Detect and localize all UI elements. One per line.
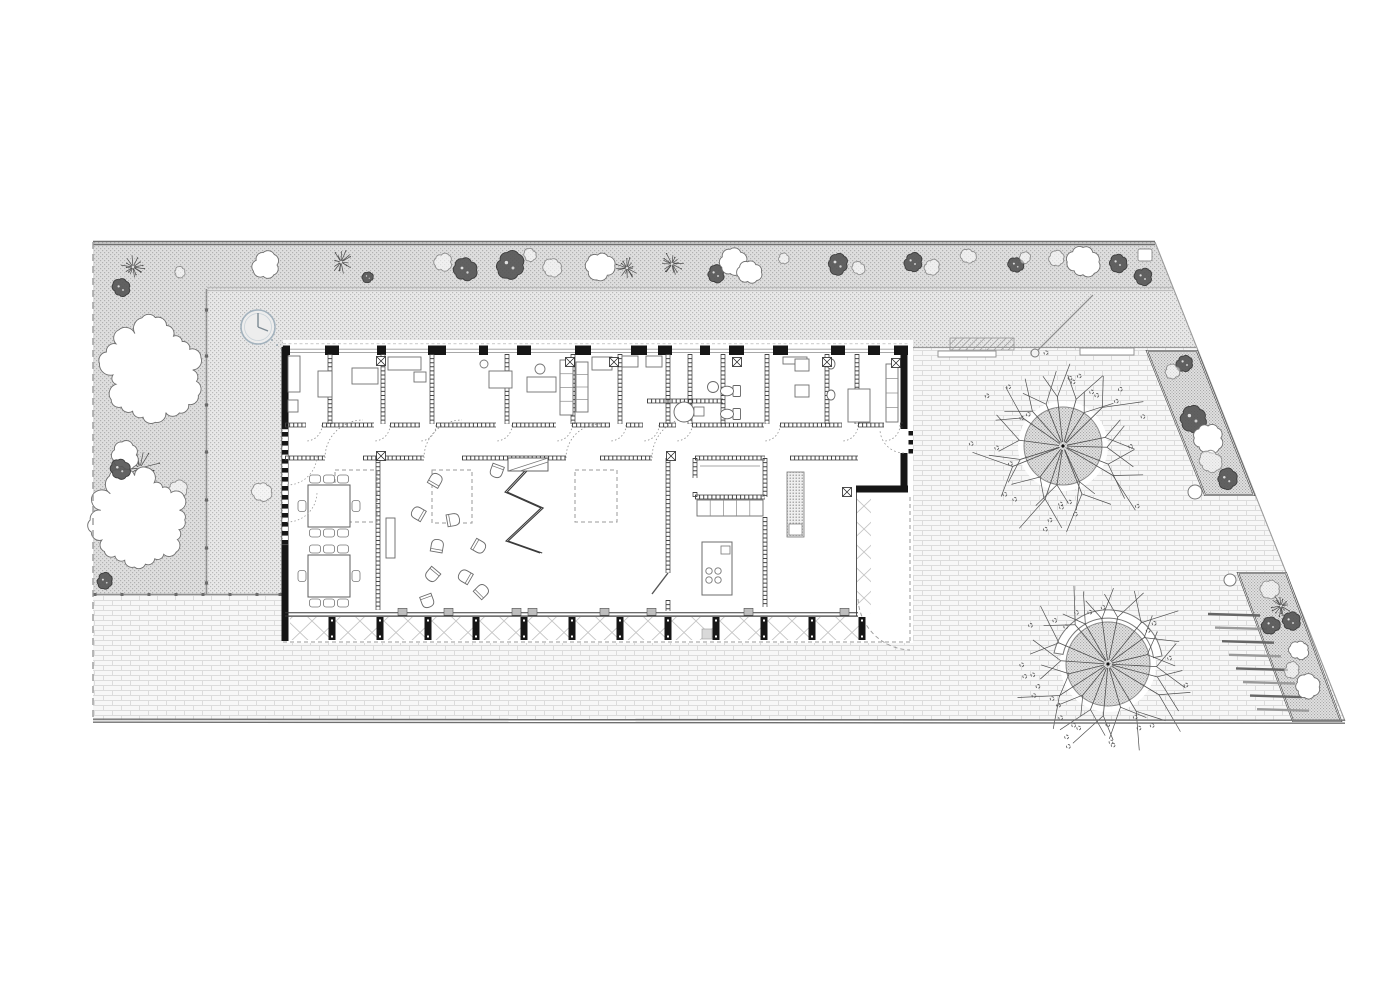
building (282, 340, 914, 650)
vent-symbol (377, 357, 386, 366)
chair (338, 599, 349, 607)
vent-symbol (733, 358, 742, 367)
pole-base (1031, 349, 1039, 357)
bench (1080, 348, 1134, 355)
wall-pier (773, 346, 788, 356)
desk-chair (480, 360, 488, 368)
vent-symbol (667, 452, 676, 461)
chair (324, 545, 335, 553)
wall-step (856, 486, 908, 493)
wall-pier (377, 346, 386, 356)
shrub-dark (1282, 612, 1300, 631)
chair (298, 571, 306, 582)
wall-pier (700, 346, 710, 356)
planter-box (1138, 249, 1152, 261)
door-track (840, 608, 849, 615)
door-track (600, 608, 609, 615)
vent-symbol (823, 358, 832, 367)
chair (338, 529, 349, 537)
wall-pier (325, 346, 339, 356)
toilet (721, 386, 741, 397)
wall-pier (575, 346, 591, 356)
desk-chair (535, 364, 545, 374)
bench (938, 351, 996, 357)
baby-bath (674, 402, 694, 422)
shrub-light (1049, 250, 1064, 266)
chair (298, 501, 306, 512)
door-track (398, 608, 407, 615)
vent-symbol (610, 358, 619, 367)
furniture (388, 357, 421, 370)
chair (324, 529, 335, 537)
exterior-wall-west (282, 347, 289, 641)
shrub-dark (97, 572, 112, 589)
chair (310, 599, 321, 607)
door-track (647, 608, 656, 615)
chair (324, 475, 335, 483)
wall-pier (479, 346, 488, 356)
architectural-site-plan (0, 0, 1400, 990)
furniture (288, 356, 300, 392)
chair (310, 529, 321, 537)
wall-pier (428, 346, 446, 356)
furniture (352, 368, 378, 384)
veranda-deck-east (857, 497, 871, 614)
furniture (848, 389, 870, 422)
furniture (527, 377, 556, 392)
sink (827, 390, 835, 400)
toilet (721, 409, 741, 420)
plant-pot (1188, 485, 1202, 499)
wall-pier (729, 346, 744, 356)
chair (338, 475, 349, 483)
plant-pot (1224, 574, 1236, 586)
sink (721, 546, 730, 554)
furniture (592, 357, 612, 370)
vent-symbol (377, 452, 386, 461)
wall-pier (831, 346, 845, 356)
furniture (622, 356, 638, 367)
shelf (386, 518, 395, 558)
furniture (489, 371, 512, 388)
furniture (414, 372, 426, 382)
chair (310, 545, 321, 553)
shrub-light (1260, 580, 1279, 599)
entrance-grate (950, 338, 1014, 350)
furniture (318, 371, 332, 397)
furniture (288, 400, 298, 412)
vent-symbol (892, 359, 901, 368)
wall-pier (631, 346, 647, 356)
furniture (646, 356, 662, 367)
chair (352, 501, 360, 512)
furniture (795, 385, 809, 397)
vent-symbol (843, 488, 852, 497)
kitchen-counter (697, 500, 763, 516)
chair (324, 599, 335, 607)
chair (352, 571, 360, 582)
wash-basin (708, 382, 719, 393)
wall-pier (517, 346, 531, 356)
door-track (744, 608, 753, 615)
furniture (795, 359, 809, 371)
child-chair (430, 539, 444, 553)
chair (338, 545, 349, 553)
vent-symbol (566, 358, 575, 367)
door-track (512, 608, 521, 615)
door-track (444, 608, 453, 615)
chair (310, 475, 321, 483)
wall-pier (868, 346, 880, 356)
window-wall (282, 429, 288, 545)
tree-cloud (1289, 641, 1309, 660)
door-track (528, 608, 537, 615)
site-plan-canvas (0, 0, 1400, 990)
wall-pier (658, 346, 672, 356)
